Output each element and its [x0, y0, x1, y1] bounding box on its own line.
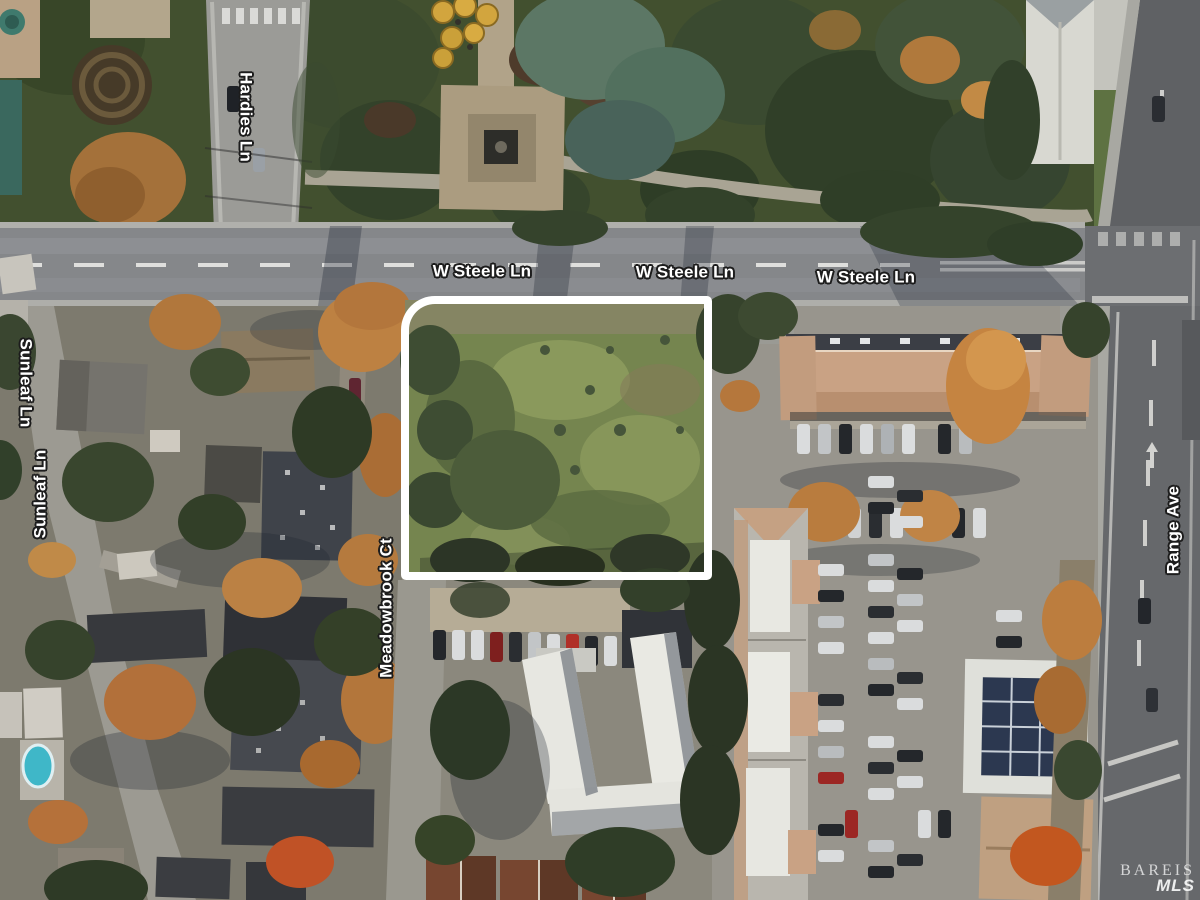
street-label-w-steele-ln-1: W Steele Ln — [433, 263, 532, 280]
parking-row-1 — [797, 424, 972, 454]
left-neighborhood — [0, 254, 411, 900]
street-label-hardies-ln: Hardies Ln — [238, 72, 255, 162]
aerial-map-view: Hardies Ln W Steele Ln W Steele Ln W Ste… — [0, 0, 1200, 900]
street-label-meadowbrook-ct: Meadowbrook Ct — [378, 538, 395, 678]
street-label-w-steele-ln-2: W Steele Ln — [636, 264, 735, 281]
street-label-sunleaf-ln-2: Sunleaf Ln — [32, 450, 49, 539]
watermark-mls-logo: MLS — [1120, 877, 1195, 894]
street-label-range-ave: Range Ave — [1165, 486, 1182, 574]
top-park — [0, 0, 1200, 243]
watermark: BAREIS MLS — [1120, 863, 1195, 894]
street-label-sunleaf-ln-1: Sunleaf Ln — [18, 339, 35, 428]
right-commercial — [696, 292, 1110, 900]
street-label-w-steele-ln-3: W Steele Ln — [817, 269, 916, 286]
parcel-outline — [401, 296, 712, 580]
